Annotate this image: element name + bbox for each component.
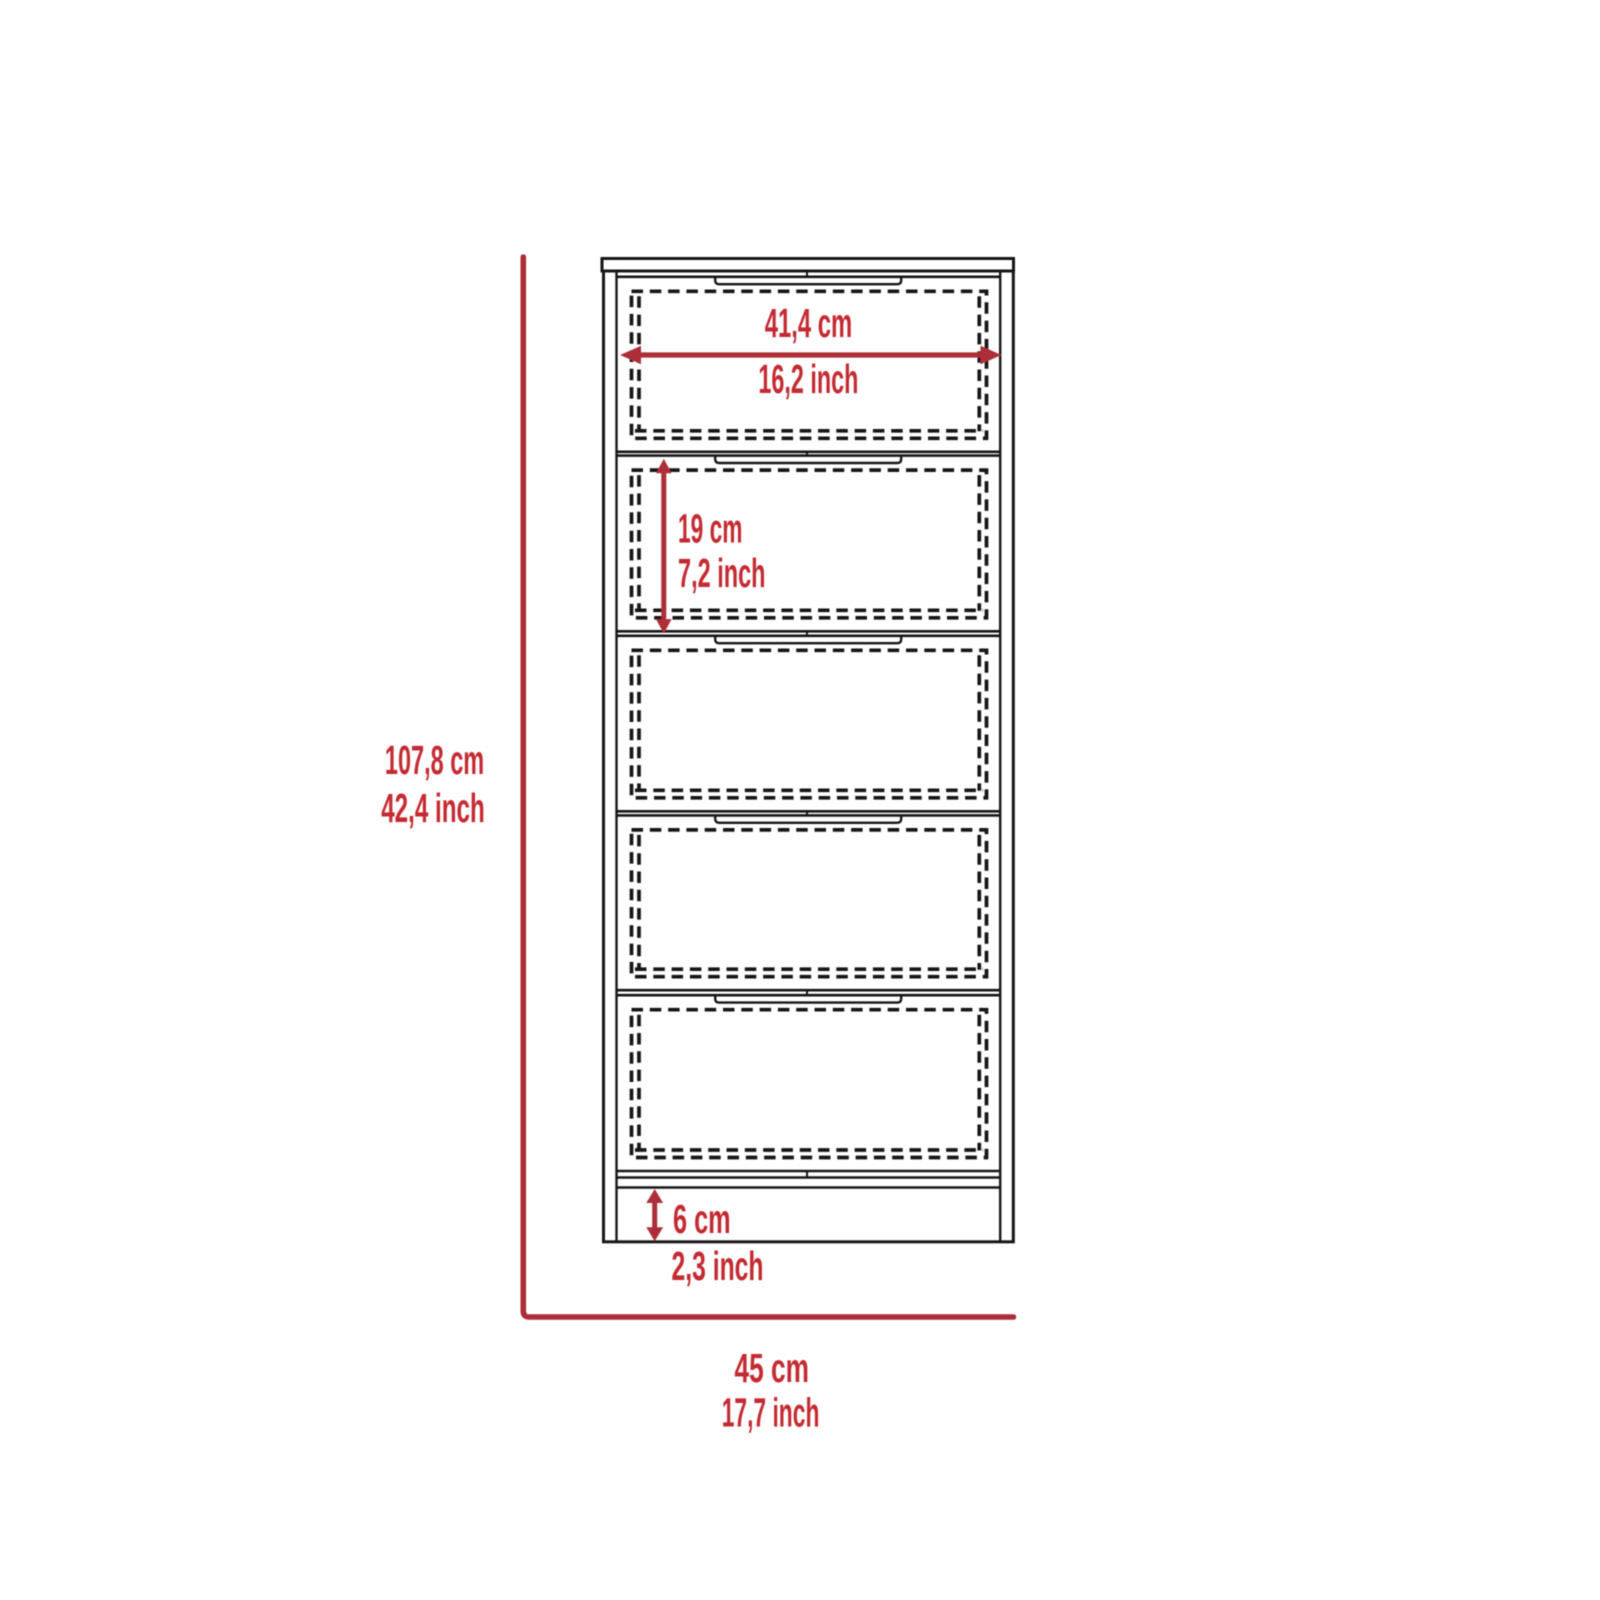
svg-text:7,2 inch: 7,2 inch (678, 550, 766, 596)
svg-text:41,4 cm: 41,4 cm (765, 300, 853, 346)
svg-text:107,8 cm: 107,8 cm (385, 737, 484, 783)
svg-text:42,4 inch: 42,4 inch (381, 785, 485, 831)
svg-text:17,7 inch: 17,7 inch (722, 1390, 820, 1436)
svg-text:16,2 inch: 16,2 inch (758, 356, 858, 402)
svg-text:2,3 inch: 2,3 inch (672, 1243, 764, 1289)
svg-text:19 cm: 19 cm (678, 506, 743, 552)
svg-text:45 cm: 45 cm (735, 1345, 809, 1391)
svg-text:6 cm: 6 cm (673, 1196, 731, 1242)
